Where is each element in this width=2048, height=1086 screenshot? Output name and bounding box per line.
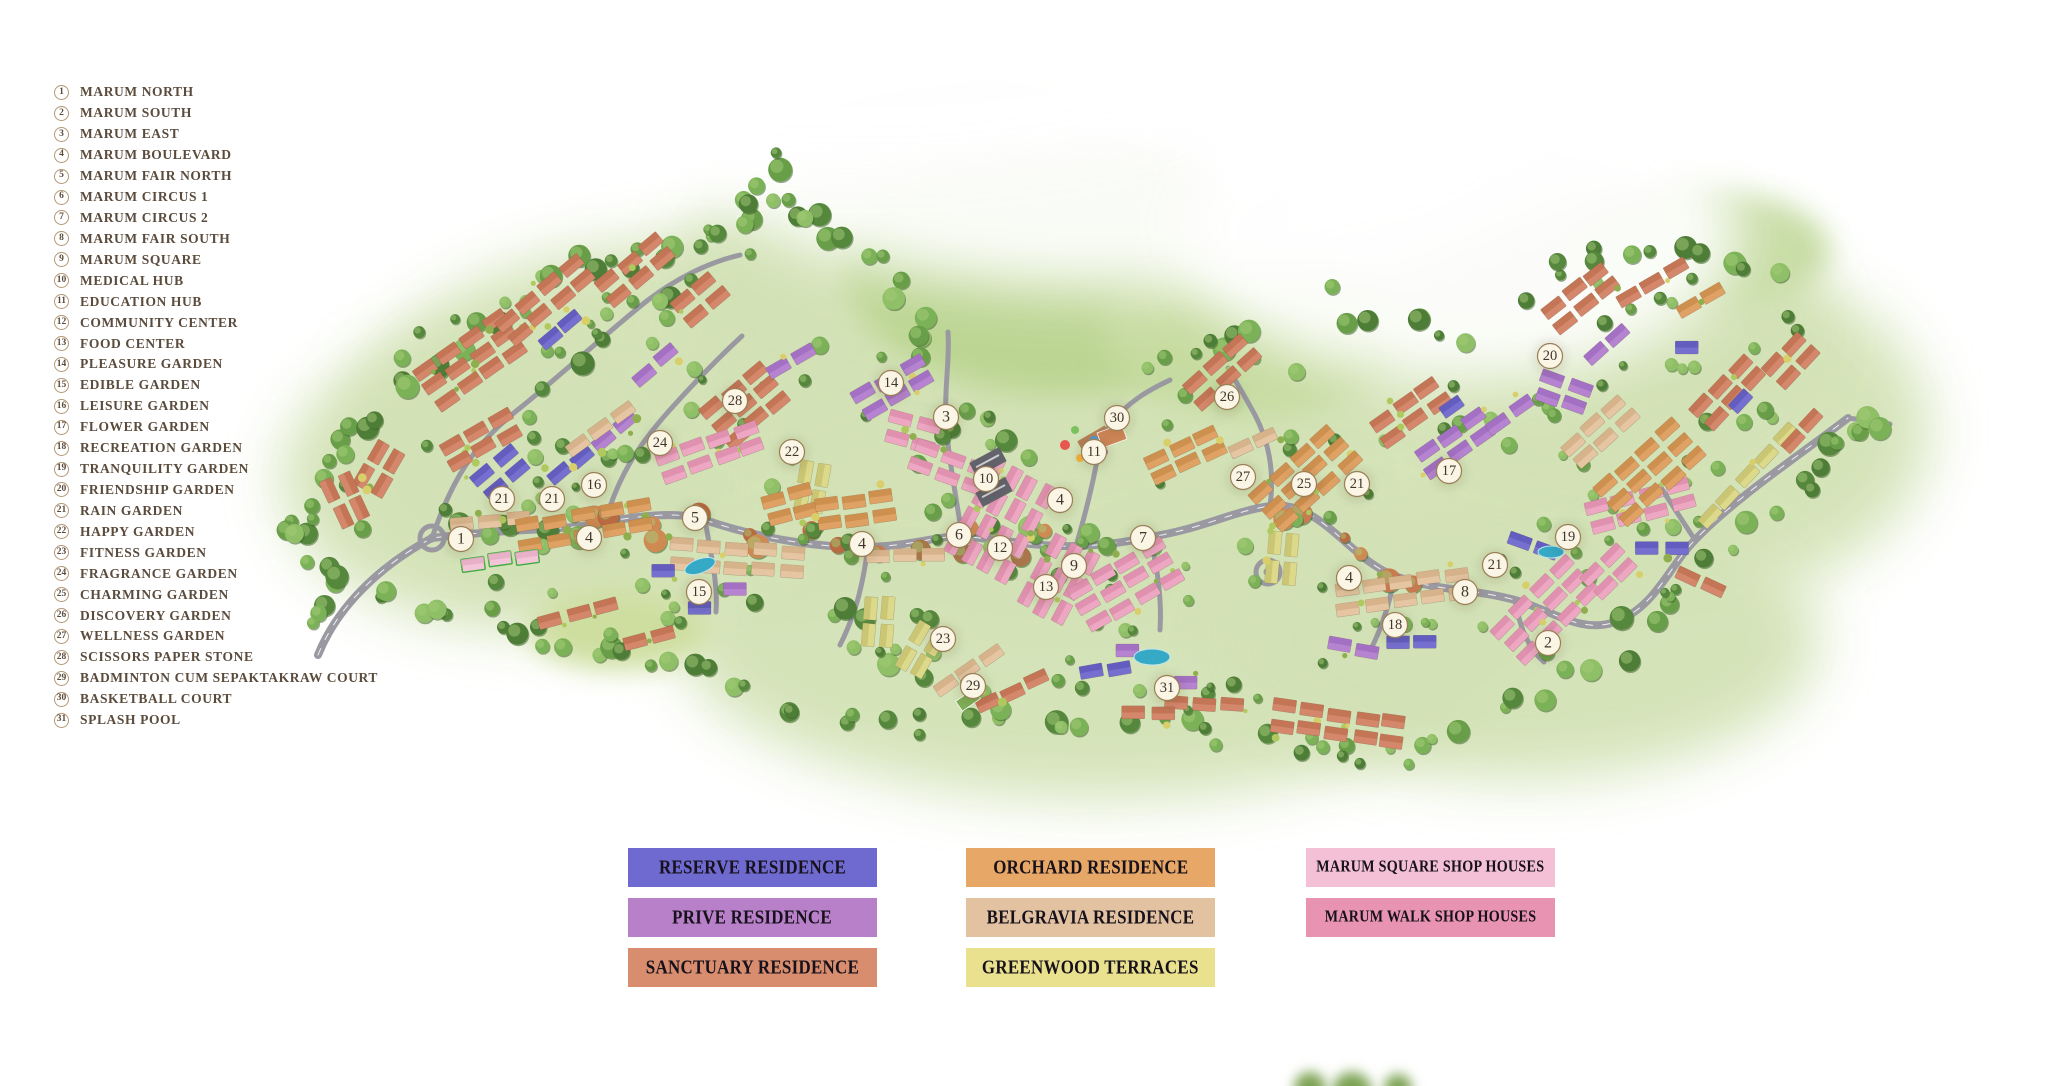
map-marker-5: 5 — [683, 506, 708, 533]
map-marker-18: 18 — [1383, 613, 1408, 640]
map-marker-26: 26 — [1215, 385, 1240, 412]
poi-item-18: 18RECREATION GARDEN — [54, 438, 378, 459]
map-marker-25: 25 — [1292, 472, 1317, 499]
poi-label: TRANQUILITY GARDEN — [80, 461, 249, 477]
poi-number-badge: 2 — [54, 106, 69, 121]
poi-item-21: 21RAIN GARDEN — [54, 500, 378, 521]
poi-number-badge: 30 — [54, 692, 69, 707]
svg-text:3: 3 — [942, 409, 950, 426]
map-marker-29: 29 — [961, 674, 986, 701]
poi-number-badge: 9 — [54, 252, 69, 267]
poi-item-10: 10MEDICAL HUB — [54, 270, 378, 291]
poi-label: MARUM CIRCUS 1 — [80, 189, 208, 205]
svg-text:24: 24 — [653, 435, 668, 451]
svg-text:17: 17 — [1442, 463, 1457, 479]
svg-text:27: 27 — [1236, 469, 1251, 485]
svg-text:21: 21 — [545, 491, 560, 507]
poi-item-5: 5MARUM FAIR NORTH — [54, 166, 378, 187]
map-marker-22: 22 — [780, 440, 805, 467]
poi-item-27: 27WELLNESS GARDEN — [54, 626, 378, 647]
poi-item-9: 9MARUM SQUARE — [54, 249, 378, 270]
poi-number-badge: 10 — [54, 273, 69, 288]
poi-label: EDUCATION HUB — [80, 294, 202, 310]
map-marker-30: 30 — [1105, 406, 1130, 433]
poi-label: RECREATION GARDEN — [80, 440, 243, 456]
poi-label: MEDICAL HUB — [80, 273, 184, 289]
poi-item-23: 23FITNESS GARDEN — [54, 542, 378, 563]
svg-text:13: 13 — [1039, 579, 1054, 595]
poi-item-1: 1MARUM NORTH — [54, 82, 378, 103]
poi-label: SCISSORS PAPER STONE — [80, 649, 254, 665]
svg-text:19: 19 — [1561, 529, 1576, 545]
map-marker-20: 20 — [1538, 344, 1563, 371]
poi-number-badge: 16 — [54, 399, 69, 414]
map-marker-19: 19 — [1556, 525, 1581, 552]
poi-label: MARUM SQUARE — [80, 252, 202, 268]
svg-text:30: 30 — [1110, 410, 1125, 426]
poi-label: RAIN GARDEN — [80, 503, 183, 519]
map-marker-1: 1 — [449, 527, 474, 554]
poi-label: MARUM SOUTH — [80, 105, 192, 121]
poi-item-31: 31SPLASH POOL — [54, 710, 378, 731]
poi-number-badge: 26 — [54, 608, 69, 623]
poi-label: FLOWER GARDEN — [80, 419, 210, 435]
poi-item-13: 13FOOD CENTER — [54, 333, 378, 354]
poi-label: CHARMING GARDEN — [80, 587, 229, 603]
poi-item-3: 3MARUM EAST — [54, 124, 378, 145]
svg-text:25: 25 — [1297, 476, 1312, 492]
poi-label: COMMUNITY CENTER — [80, 315, 238, 331]
poi-number-badge: 25 — [54, 587, 69, 602]
svg-text:6: 6 — [955, 527, 963, 544]
svg-text:8: 8 — [1461, 584, 1469, 601]
map-marker-10: 10 — [974, 467, 999, 494]
poi-item-7: 7MARUM CIRCUS 2 — [54, 208, 378, 229]
poi-number-badge: 1 — [54, 85, 69, 100]
svg-text:5: 5 — [691, 510, 699, 527]
poi-label: MARUM NORTH — [80, 84, 194, 100]
map-marker-7: 7 — [1131, 526, 1156, 553]
poi-number-badge: 14 — [54, 357, 69, 372]
map-marker-21: 21 — [1345, 472, 1370, 499]
poi-item-11: 11EDUCATION HUB — [54, 291, 378, 312]
map-marker-2: 2 — [1536, 631, 1561, 658]
svg-text:9: 9 — [1070, 558, 1078, 575]
svg-text:29: 29 — [966, 678, 981, 694]
poi-label: FITNESS GARDEN — [80, 545, 207, 561]
poi-number-badge: 23 — [54, 545, 69, 560]
poi-number-badge: 5 — [54, 169, 69, 184]
poi-label: FRAGRANCE GARDEN — [80, 566, 238, 582]
poi-label: FOOD CENTER — [80, 336, 185, 352]
poi-label: WELLNESS GARDEN — [80, 628, 225, 644]
map-marker-15: 15 — [687, 580, 712, 607]
poi-number-badge: 12 — [54, 315, 69, 330]
poi-item-29: 29BADMINTON CUM SEPAKTAKRAW COURT — [54, 668, 378, 689]
playground-icon — [1071, 426, 1079, 434]
svg-text:18: 18 — [1388, 617, 1403, 633]
map-marker-13: 13 — [1034, 575, 1059, 602]
poi-label: MARUM CIRCUS 2 — [80, 210, 208, 226]
svg-text:4: 4 — [1056, 492, 1064, 509]
poi-number-badge: 19 — [54, 462, 69, 477]
svg-text:31: 31 — [1160, 680, 1175, 696]
svg-text:23: 23 — [936, 631, 951, 647]
poi-label: MARUM EAST — [80, 126, 179, 142]
svg-text:4: 4 — [858, 536, 866, 553]
svg-text:1: 1 — [457, 531, 465, 548]
map-marker-4: 4 — [1048, 488, 1073, 515]
poi-item-16: 16LEISURE GARDEN — [54, 396, 378, 417]
poi-number-badge: 27 — [54, 629, 69, 644]
poi-legend-list: 1MARUM NORTH2MARUM SOUTH3MARUM EAST4MARU… — [54, 82, 378, 731]
map-marker-11: 11 — [1082, 440, 1107, 467]
house-cluster-P — [723, 583, 746, 596]
masterplan-page: 1234444567891011121314151617181920212121… — [0, 0, 2048, 1086]
poi-number-badge: 3 — [54, 127, 69, 142]
poi-item-4: 4MARUM BOULEVARD — [54, 145, 378, 166]
house-cluster-R — [1675, 341, 1698, 354]
poi-number-badge: 24 — [54, 566, 69, 581]
svg-text:4: 4 — [585, 530, 593, 547]
poi-item-14: 14PLEASURE GARDEN — [54, 354, 378, 375]
svg-text:21: 21 — [495, 491, 510, 507]
svg-text:20: 20 — [1543, 348, 1558, 364]
poi-number-badge: 29 — [54, 671, 69, 686]
poi-label: SPLASH POOL — [80, 712, 181, 728]
poi-number-badge: 21 — [54, 503, 69, 518]
map-marker-21: 21 — [1483, 553, 1508, 580]
poi-label: DISCOVERY GARDEN — [80, 608, 232, 624]
poi-number-badge: 31 — [54, 713, 69, 728]
poi-label: MARUM FAIR NORTH — [80, 168, 232, 184]
svg-text:21: 21 — [1350, 476, 1365, 492]
svg-text:12: 12 — [993, 540, 1008, 556]
map-marker-4: 4 — [850, 532, 875, 559]
map-marker-23: 23 — [931, 627, 956, 654]
map-marker-31: 31 — [1155, 676, 1180, 703]
map-marker-8: 8 — [1453, 580, 1478, 607]
svg-text:16: 16 — [587, 477, 602, 493]
poi-item-6: 6MARUM CIRCUS 1 — [54, 187, 378, 208]
poi-item-26: 26DISCOVERY GARDEN — [54, 605, 378, 626]
poi-number-badge: 7 — [54, 210, 69, 225]
svg-text:15: 15 — [692, 584, 707, 600]
poi-label: LEISURE GARDEN — [80, 398, 210, 414]
poi-number-badge: 22 — [54, 524, 69, 539]
map-marker-28: 28 — [723, 389, 748, 416]
poi-label: MARUM FAIR SOUTH — [80, 231, 230, 247]
poi-number-badge: 15 — [54, 378, 69, 393]
poi-item-20: 20FRIENDSHIP GARDEN — [54, 480, 378, 501]
poi-item-22: 22HAPPY GARDEN — [54, 521, 378, 542]
svg-text:14: 14 — [884, 375, 899, 391]
poi-number-badge: 8 — [54, 231, 69, 246]
map-marker-21: 21 — [540, 487, 565, 514]
poi-number-badge: 13 — [54, 336, 69, 351]
playground-icon — [1060, 440, 1070, 450]
poi-number-badge: 17 — [54, 420, 69, 435]
poi-item-17: 17FLOWER GARDEN — [54, 417, 378, 438]
poi-item-2: 2MARUM SOUTH — [54, 103, 378, 124]
map-marker-14: 14 — [879, 371, 904, 398]
poi-item-15: 15EDIBLE GARDEN — [54, 375, 378, 396]
poi-number-badge: 11 — [54, 294, 69, 309]
svg-text:21: 21 — [1488, 557, 1503, 573]
map-marker-4: 4 — [1337, 566, 1362, 593]
poi-number-badge: 20 — [54, 482, 69, 497]
poi-label: BADMINTON CUM SEPAKTAKRAW COURT — [80, 670, 378, 686]
poi-item-24: 24FRAGRANCE GARDEN — [54, 563, 378, 584]
poi-label: EDIBLE GARDEN — [80, 377, 201, 393]
map-marker-3: 3 — [934, 405, 959, 432]
poi-label: MARUM BOULEVARD — [80, 147, 232, 163]
poi-label: PLEASURE GARDEN — [80, 356, 223, 372]
poi-number-badge: 4 — [54, 148, 69, 163]
poi-item-28: 28SCISSORS PAPER STONE — [54, 647, 378, 668]
pool-icon — [1134, 649, 1170, 665]
poi-number-badge: 18 — [54, 441, 69, 456]
svg-text:7: 7 — [1139, 530, 1147, 547]
poi-item-19: 19TRANQUILITY GARDEN — [54, 459, 378, 480]
poi-label: HAPPY GARDEN — [80, 524, 195, 540]
poi-number-badge: 28 — [54, 650, 69, 665]
svg-text:10: 10 — [979, 471, 994, 487]
map-marker-16: 16 — [582, 473, 607, 500]
map-marker-9: 9 — [1062, 554, 1087, 581]
poi-label: FRIENDSHIP GARDEN — [80, 482, 235, 498]
map-marker-21: 21 — [490, 487, 515, 514]
poi-label: BASKETBALL COURT — [80, 691, 232, 707]
map-marker-6: 6 — [947, 523, 972, 550]
map-marker-4: 4 — [577, 526, 602, 553]
map-marker-12: 12 — [988, 536, 1013, 563]
map-marker-27: 27 — [1231, 465, 1256, 492]
poi-item-25: 25CHARMING GARDEN — [54, 584, 378, 605]
poi-item-30: 30BASKETBALL COURT — [54, 689, 378, 710]
svg-text:28: 28 — [728, 393, 743, 409]
map-marker-17: 17 — [1437, 459, 1462, 486]
poi-number-badge: 6 — [54, 190, 69, 205]
svg-text:11: 11 — [1087, 444, 1101, 460]
poi-item-12: 12COMMUNITY CENTER — [54, 312, 378, 333]
map-marker-24: 24 — [648, 431, 673, 458]
svg-text:2: 2 — [1544, 635, 1552, 652]
poi-item-8: 8MARUM FAIR SOUTH — [54, 228, 378, 249]
svg-text:22: 22 — [785, 444, 800, 460]
svg-text:4: 4 — [1345, 570, 1353, 587]
svg-text:26: 26 — [1220, 389, 1235, 405]
